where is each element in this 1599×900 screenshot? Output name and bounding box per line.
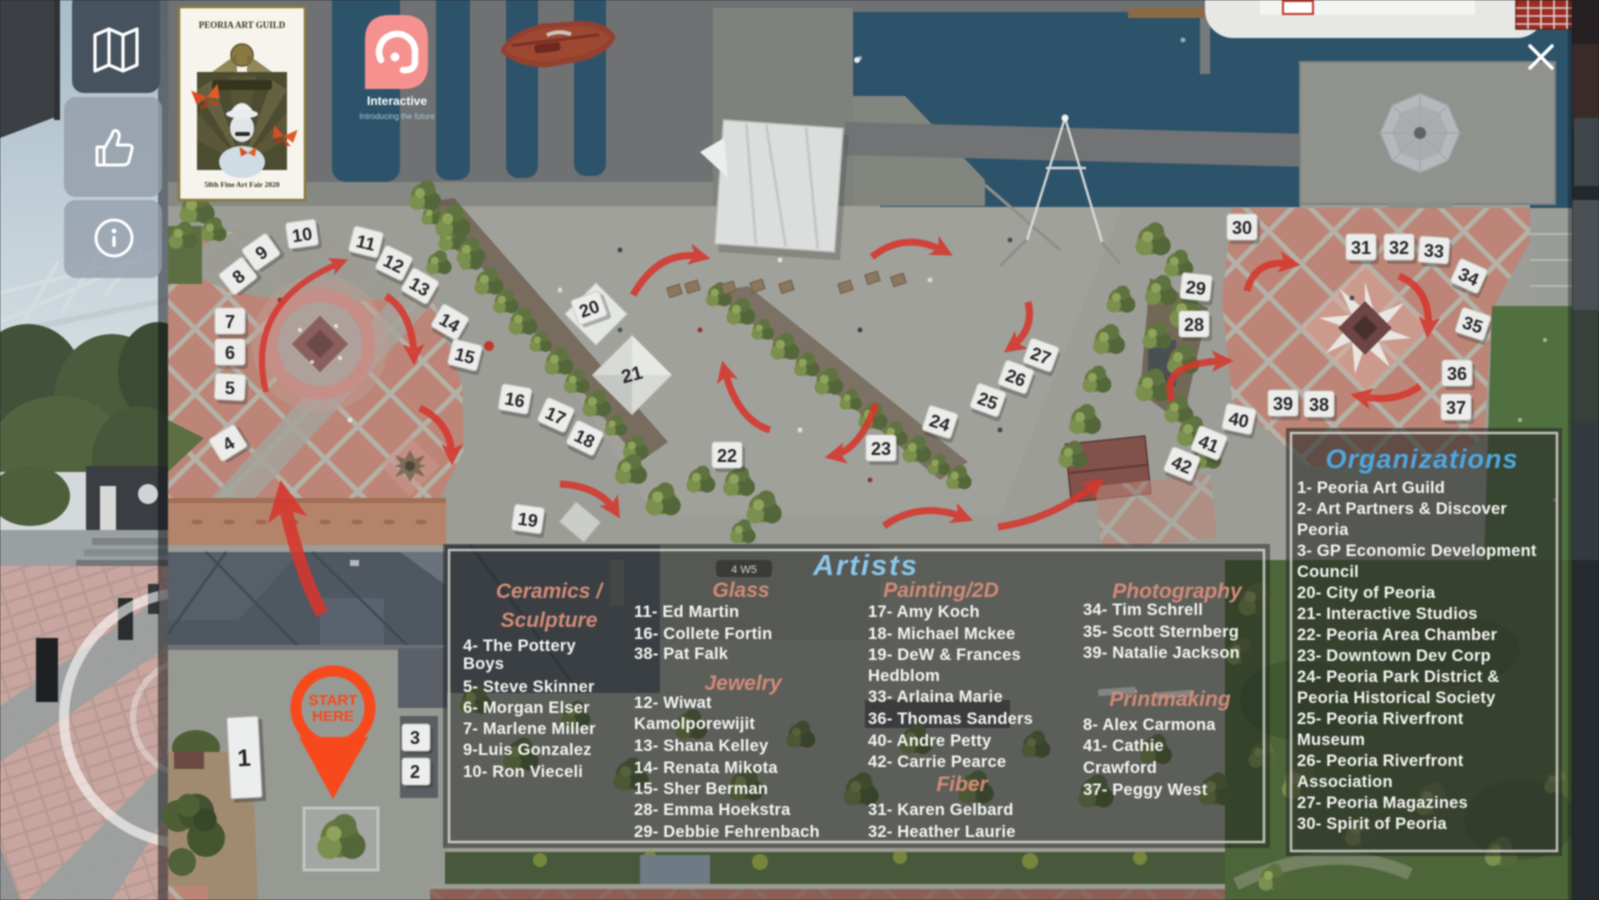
svg-text:Jewelry: Jewelry	[704, 672, 782, 695]
svg-text:7- Marlene Miller: 7- Marlene Miller	[463, 720, 596, 738]
svg-text:Photography: Photography	[1112, 580, 1243, 603]
svg-text:7: 7	[225, 312, 235, 332]
svg-text:31: 31	[1351, 238, 1371, 258]
svg-text:Peoria Historical Society: Peoria Historical Society	[1297, 689, 1496, 707]
svg-text:23- Downtown Dev Corp: 23- Downtown Dev Corp	[1297, 647, 1491, 665]
svg-text:15- Sher Berman: 15- Sher Berman	[634, 780, 768, 798]
svg-text:Organizations: Organizations	[1325, 444, 1518, 474]
svg-text:3- GP Economic Development: 3- GP Economic Development	[1297, 542, 1537, 560]
svg-text:35- Scott Sternberg: 35- Scott Sternberg	[1083, 623, 1239, 641]
svg-text:14- Renata Mikota: 14- Renata Mikota	[634, 759, 778, 777]
svg-text:16: 16	[503, 388, 526, 411]
svg-text:9-Luis Gonzalez: 9-Luis Gonzalez	[463, 741, 592, 759]
svg-text:10: 10	[291, 224, 314, 247]
svg-text:33- Arlaina Marie: 33- Arlaina Marie	[868, 688, 1003, 706]
svg-text:Sculpture: Sculpture	[501, 609, 598, 632]
svg-text:Crawford: Crawford	[1083, 759, 1157, 777]
svg-text:Association: Association	[1297, 773, 1393, 791]
svg-text:11- Ed Martin: 11- Ed Martin	[634, 603, 739, 621]
svg-text:26- Peoria Riverfront: 26- Peoria Riverfront	[1297, 752, 1464, 770]
svg-text:4- The Pottery: 4- The Pottery	[463, 637, 576, 655]
svg-text:1- Peoria Art Guild: 1- Peoria Art Guild	[1297, 479, 1445, 497]
svg-text:Artists: Artists	[812, 550, 919, 582]
svg-text:8- Alex Carmona: 8- Alex Carmona	[1083, 716, 1216, 734]
svg-text:START: START	[309, 692, 358, 709]
svg-text:36- Thomas Sanders: 36- Thomas Sanders	[868, 710, 1033, 728]
svg-text:28: 28	[1184, 315, 1204, 335]
svg-text:Printmaking: Printmaking	[1109, 688, 1231, 711]
svg-text:18- Michael Mckee: 18- Michael Mckee	[868, 625, 1015, 643]
svg-text:HERE: HERE	[312, 708, 354, 725]
svg-text:Interactive: Interactive	[367, 94, 427, 108]
svg-text:6- Morgan Elser: 6- Morgan Elser	[463, 699, 590, 717]
svg-text:39: 39	[1273, 394, 1293, 414]
svg-text:Fiber: Fiber	[936, 773, 989, 796]
svg-text:36: 36	[1447, 364, 1467, 384]
svg-text:34- Tim Schrell: 34- Tim Schrell	[1083, 601, 1203, 619]
svg-text:37: 37	[1446, 398, 1466, 418]
svg-text:39- Natalie Jackson: 39- Natalie Jackson	[1083, 644, 1240, 662]
svg-text:37- Peggy West: 37- Peggy West	[1083, 781, 1208, 799]
svg-text:Ceramics /: Ceramics /	[496, 580, 604, 603]
svg-text:16- Collete Fortin: 16- Collete Fortin	[634, 625, 772, 643]
svg-text:58th Fine Art Fair 2020: 58th Fine Art Fair 2020	[204, 180, 280, 189]
svg-text:Museum: Museum	[1297, 731, 1365, 749]
svg-text:13- Shana Kelley: 13- Shana Kelley	[634, 737, 769, 755]
svg-text:30: 30	[1232, 218, 1252, 238]
svg-text:4 W5: 4 W5	[731, 564, 757, 576]
svg-text:1: 1	[237, 745, 252, 773]
svg-text:25- Peoria Riverfront: 25- Peoria Riverfront	[1297, 710, 1464, 728]
svg-text:29: 29	[1185, 277, 1207, 299]
svg-text:Boys: Boys	[463, 655, 504, 673]
svg-text:PEORIA ART GUILD: PEORIA ART GUILD	[199, 20, 286, 30]
svg-text:5: 5	[224, 378, 235, 398]
svg-text:40: 40	[1227, 408, 1251, 432]
svg-text:23: 23	[871, 439, 891, 459]
svg-text:3: 3	[410, 728, 420, 748]
svg-text:31- Karen Gelbard: 31- Karen Gelbard	[868, 801, 1014, 819]
svg-text:38: 38	[1309, 395, 1329, 415]
svg-text:17- Amy Koch: 17- Amy Koch	[868, 603, 980, 621]
svg-text:38- Pat Falk: 38- Pat Falk	[634, 645, 729, 663]
svg-text:Hedblom: Hedblom	[868, 667, 940, 685]
svg-text:30- Spirit of Peoria: 30- Spirit of Peoria	[1297, 815, 1447, 833]
svg-text:21- Interactive Studios: 21- Interactive Studios	[1297, 605, 1478, 623]
svg-text:Glass: Glass	[712, 579, 769, 602]
svg-text:19- DeW & Frances: 19- DeW & Frances	[868, 646, 1021, 664]
svg-text:2: 2	[410, 762, 420, 782]
svg-text:2- Art Partners & Discover: 2- Art Partners & Discover	[1297, 500, 1507, 518]
svg-text:22- Peoria Area Chamber: 22- Peoria Area Chamber	[1297, 626, 1498, 644]
svg-text:22: 22	[717, 446, 737, 466]
svg-text:Painting/2D: Painting/2D	[883, 579, 999, 602]
svg-text:Kamolporewijit: Kamolporewijit	[634, 715, 755, 733]
svg-text:32: 32	[1389, 238, 1409, 258]
svg-text:Introducing the future: Introducing the future	[359, 112, 435, 121]
svg-text:Peoria: Peoria	[1297, 521, 1349, 539]
svg-text:29- Debbie Fehrenbach: 29- Debbie Fehrenbach	[634, 823, 820, 841]
svg-text:6: 6	[225, 343, 235, 363]
svg-text:20- City of Peoria: 20- City of Peoria	[1297, 584, 1436, 602]
svg-text:27- Peoria Magazines: 27- Peoria Magazines	[1297, 794, 1468, 812]
svg-text:33: 33	[1423, 240, 1444, 261]
svg-text:Council: Council	[1297, 563, 1359, 581]
svg-text:24- Peoria Park District &: 24- Peoria Park District &	[1297, 668, 1499, 686]
svg-text:10- Ron Vieceli: 10- Ron Vieceli	[463, 763, 583, 781]
svg-text:41- Cathie: 41- Cathie	[1083, 737, 1164, 755]
svg-text:40- Andre Petty: 40- Andre Petty	[868, 732, 992, 750]
svg-text:32- Heather Laurie: 32- Heather Laurie	[868, 823, 1016, 841]
svg-text:19: 19	[517, 509, 540, 532]
svg-text:28- Emma Hoekstra: 28- Emma Hoekstra	[634, 801, 791, 819]
svg-text:42- Carrie Pearce: 42- Carrie Pearce	[868, 753, 1006, 771]
svg-text:5- Steve Skinner: 5- Steve Skinner	[463, 678, 595, 696]
svg-text:12- Wiwat: 12- Wiwat	[634, 694, 712, 712]
